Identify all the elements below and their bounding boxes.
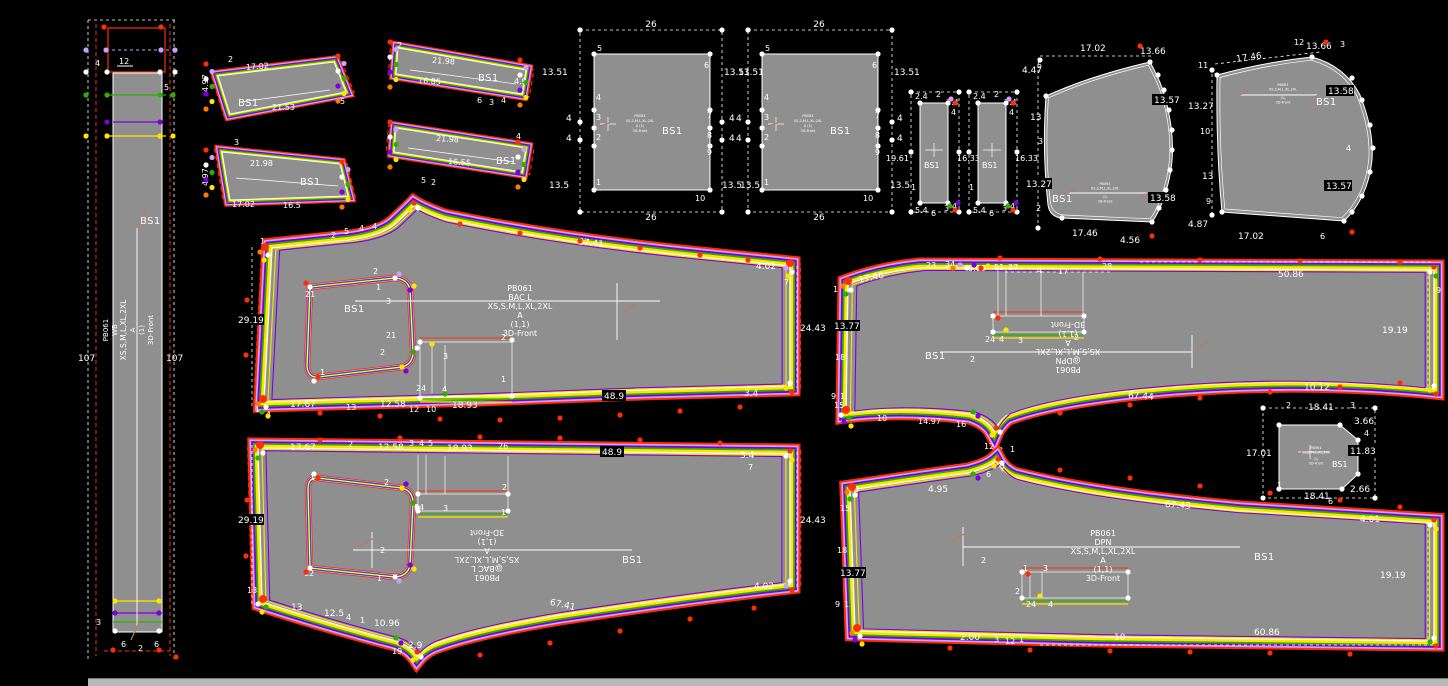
piece-back-top[interactable]: 29.19 1 2 5 4 4 67.41 4.02 7 24.43 17.67… (236, 201, 826, 419)
dim-label: 48.9 (602, 448, 622, 458)
point-label: 37 (1008, 263, 1018, 272)
dim-label: 29.19 (238, 516, 264, 526)
piece-square[interactable]: 2 18.41 3 3.66 4 11.83 2.66 1 18.41 6 17… (1246, 401, 1376, 506)
point-label: 4 (1009, 108, 1014, 117)
svg-text:@BAC L: @BAC L (471, 564, 503, 573)
point-label: 26 (498, 442, 508, 451)
point-label: 24 (985, 335, 995, 344)
bundle-label: BS1 (1052, 194, 1073, 205)
svg-text:3D-Front: 3D-Front (503, 329, 537, 338)
point-label: 21 (305, 290, 315, 299)
piece-annotation: XS,S,M,L,XL,2XL (794, 119, 822, 123)
dim-label: 4.02 (756, 262, 776, 272)
piece-annotation: 3D-Front (632, 129, 648, 133)
piece-annotation: XS,S,M,L,XL,2XL (1302, 451, 1330, 455)
piece-annotation: XS,S,M,L,XL,2XL (626, 119, 654, 123)
dim-label: 4.47 (1022, 66, 1042, 76)
dim-label: 13 (1030, 113, 1041, 123)
point-label: 12 (1005, 637, 1015, 646)
dim-label: 2.66 (1350, 485, 1370, 495)
svg-text:WB: WB (111, 324, 119, 336)
piece-annotation: A (1) (636, 124, 645, 128)
point-label: 2 (1015, 587, 1020, 596)
dim-label: 12.5 (324, 609, 344, 619)
dim-label: 4 (897, 114, 903, 124)
dim-label: 29.19 (238, 316, 264, 326)
dim-label: 21.98 (250, 159, 273, 168)
point-label: 2 (348, 440, 353, 449)
point-label: 3 (443, 504, 448, 513)
point-label: 6 (477, 96, 482, 105)
dim-label: 26 (813, 213, 825, 223)
dim-label: 12.58 (380, 400, 406, 410)
svg-text:(1,1): (1,1) (1059, 329, 1078, 338)
dim-label: 2 (138, 644, 143, 653)
piece-side-right[interactable]: 11 17.46 12 13.66 3 13.58 4 13.57 13.27 … (1188, 38, 1372, 242)
point-label: 6 (989, 209, 994, 218)
dim-label: 17.02 (1238, 232, 1264, 242)
point-label: 5 (340, 97, 345, 106)
point-label: 8 (875, 131, 880, 140)
side-shape[interactable] (1217, 57, 1372, 221)
dim-label: 13.58 (1328, 87, 1354, 97)
dim-label: 4 (729, 114, 735, 124)
dim-label: 13 (291, 603, 302, 613)
point-label: 5 (344, 227, 349, 236)
point-label: 4 (1364, 429, 1369, 438)
piece-annotation: A (1) (804, 124, 813, 128)
point-label: 2 (380, 546, 385, 555)
svg-text:A: A (1065, 338, 1071, 347)
dim-label: 5.4 (915, 206, 928, 215)
svg-text:XS,S,M,L,XL,2XL: XS,S,M,L,XL,2XL (454, 555, 519, 564)
dim-label: 13.77 (834, 322, 860, 332)
point-label: 11 (1198, 61, 1208, 70)
dim-label: 4 (736, 134, 742, 144)
piece-annotation: PB061 (634, 114, 645, 118)
point-label: 2 (384, 478, 389, 487)
dim-label: 11.83 (1350, 447, 1376, 457)
piece-front-top[interactable]: 17.46 1 23 34 0.00 51 37 4 17 28 50.86 9… (831, 260, 1441, 455)
dim-label: 19.61 (886, 154, 909, 163)
dim-label: 24.43 (800, 516, 826, 526)
dim-label: 16.33 (957, 154, 980, 163)
point-label: 13 (346, 403, 356, 412)
point-label: 3 (443, 352, 448, 361)
point-label: 13 (247, 586, 257, 595)
point-label: 9 (707, 148, 712, 157)
point-label: 7 (784, 278, 789, 287)
point-label: 1 (376, 283, 381, 292)
piece-strip-2[interactable]: 2.4 2 2.4 4 16.33 1 5.4 6 3 4 BS1 (969, 90, 1038, 218)
dim-label: 13.27 (1188, 102, 1214, 112)
point-label: 9 (835, 600, 840, 609)
point-label: 3 (489, 98, 494, 107)
svg-text:(1,1): (1,1) (478, 537, 497, 546)
svg-text:XS,S,M,L,XL,2XL: XS,S,M,L,XL,2XL (1035, 347, 1100, 356)
piece-back-bottom[interactable]: 17.67 2 12.58 3 4 5 18.93 26 48.9 3.4 7 … (236, 439, 826, 661)
dim-label: 3.4 (744, 389, 759, 399)
point-label: 6 (931, 209, 936, 218)
piece-waistband[interactable]: 4 12 5 107 107 PB061 WB XS,S,M,L,XL,2XL … (78, 20, 183, 660)
point-label: 2 (970, 355, 975, 364)
pant-front-shape[interactable] (846, 268, 1434, 431)
piece-band-3[interactable]: 2 21.98 16.85 BS1 4.9 6 3 4 (388, 41, 534, 107)
point-label: 24 (416, 384, 426, 393)
point-label: 9 (1436, 286, 1441, 295)
dim-label: 16.55 (448, 157, 471, 168)
svg-text:3D-Front: 3D-Front (1051, 320, 1085, 329)
dim-label: 2.4 (973, 92, 986, 101)
point-label: 3 (994, 635, 999, 644)
point-label: 18 (835, 353, 845, 362)
point-label: 12 (1294, 38, 1304, 47)
piece-annotation: 3D-Front (800, 129, 816, 133)
point-label: 5 (428, 439, 433, 448)
point-label: 1 (840, 392, 845, 401)
point-label: 4 (1037, 266, 1042, 275)
dim-label: 13.27 (1026, 180, 1052, 190)
point-label: 4 (346, 613, 351, 622)
dim-label: 13.5 (740, 181, 760, 191)
piece-annotation: XS,S,M,L,XL,2XL (1091, 187, 1119, 191)
dim-label: 48.9 (604, 392, 624, 402)
point-label: 10 (1200, 127, 1210, 136)
bundle-label: BS1 (496, 156, 517, 167)
point-label: 3 (1350, 401, 1355, 410)
dim-label: 107 (166, 354, 183, 364)
bundle-label: BS1 (238, 98, 259, 109)
point-label: 5 (765, 44, 770, 53)
point-label: 1 (596, 178, 601, 187)
dim-label: 18.41 (1308, 403, 1334, 413)
point-label: 4 (999, 335, 1004, 344)
point-label: 1 (764, 178, 769, 187)
svg-text:BAC L: BAC L (508, 293, 532, 302)
point-label: 18 (837, 546, 847, 555)
point-label: 2 (994, 90, 999, 99)
dim-label: 4 (566, 134, 572, 144)
dim-label: 17.46 (1072, 229, 1098, 239)
piece-annotation: (1) (1281, 96, 1287, 100)
dim-label: 50.86 (1278, 270, 1304, 280)
dim-label: 67.43 (1165, 500, 1191, 512)
point-label: 2 (1286, 401, 1291, 410)
svg-text:PB061: PB061 (1090, 529, 1116, 538)
dim-label: 13.77 (840, 569, 866, 579)
bundle-label: BS1 (300, 177, 321, 188)
piece-annotation: PB061 (1277, 83, 1288, 87)
point-label: 23 (926, 261, 936, 270)
dim-label: 16.33 (1015, 154, 1038, 163)
dim-label: 18.41 (1304, 492, 1330, 502)
point-label: 12 (409, 405, 419, 414)
point-label: 1 (360, 616, 365, 625)
piece-annotation: PB061 (1310, 446, 1321, 450)
point-label: 2 (1036, 204, 1041, 213)
point-label: 2 (764, 133, 769, 142)
point-label: 4 (951, 108, 956, 117)
dim-label: 19.19 (1380, 571, 1406, 581)
dim-label: 13.51 (738, 68, 764, 78)
dim-label: 26 (813, 20, 825, 30)
point-label: 10 (426, 405, 436, 414)
point-label: 1 (844, 600, 849, 609)
bundle-label: BS1 (924, 161, 940, 170)
svg-text:A: A (1100, 556, 1106, 565)
dim-label: 10 (1114, 633, 1126, 643)
point-label: 4 (596, 93, 601, 102)
svg-text:3D-Front: 3D-Front (470, 528, 504, 537)
point-label: 8 (707, 131, 712, 140)
pattern-canvas: 4 12 5 107 107 PB061 WB XS,S,M,L,XL,2XL … (0, 0, 1448, 686)
dim-label: 13.66 (1140, 47, 1166, 57)
point-label: 9 (1206, 197, 1211, 206)
bundle-label: BS1 (344, 304, 365, 315)
point-label: 9 (831, 392, 836, 401)
bundle-label: BS1 (1316, 97, 1337, 108)
bundle-label: BS1 (478, 73, 499, 84)
svg-text:PB061: PB061 (507, 284, 533, 293)
dim-label: 18.93 (452, 401, 478, 411)
point-label: 17 (1058, 267, 1068, 276)
dim-label: 3.4 (740, 451, 755, 461)
dim-label: 10.12 (1304, 383, 1330, 393)
dim-label: 10 (877, 414, 887, 423)
piece-pocket-1[interactable]: 26 26 13.51 4 4 13.5 13.51 4 4 13.5 5 4 … (542, 20, 750, 223)
svg-text:3D-Front: 3D-Front (1086, 574, 1120, 583)
dim-label: 17.02 (1080, 44, 1106, 54)
dim-label: 4.97 (201, 168, 210, 186)
dim-label: 2.9 (408, 641, 423, 651)
bundle-label: BS1 (662, 126, 683, 137)
point-label: 1 (377, 574, 382, 583)
point-label: 2 (431, 178, 436, 187)
dim-label: 4 (729, 134, 735, 144)
point-label: 3 (1340, 40, 1345, 49)
point-label: 19 (392, 647, 402, 656)
point-label: 9 (875, 148, 880, 157)
dim-label: 26 (645, 213, 657, 223)
dim-label: 4.01 (1360, 515, 1380, 525)
dim-label: 17.01 (1246, 449, 1272, 459)
point-label: 7 (748, 463, 753, 472)
point-label: 1 (320, 368, 325, 377)
point-label: 12 (984, 442, 994, 451)
point-label: 3 (386, 297, 391, 306)
point-label: 4 (419, 439, 424, 448)
svg-text:(1): (1) (138, 325, 146, 335)
bundle-label: BS1 (622, 555, 643, 566)
dim-label: 19.19 (1382, 326, 1408, 336)
horizontal-scrollbar[interactable] (88, 678, 1448, 686)
dim-label: 13.58 (1150, 194, 1176, 204)
point-label: 2 (373, 267, 378, 276)
dim-label: 5.4 (973, 206, 986, 215)
point-label: 51 (994, 263, 1004, 272)
point-label: 15 (840, 504, 850, 513)
dim-label: 13.51 (894, 68, 920, 78)
dim-label: 13.51 (542, 68, 568, 78)
dim-label: 18.93 (447, 444, 473, 454)
svg-text:A: A (517, 311, 523, 320)
svg-text:A: A (484, 546, 490, 555)
point-label: 1 (1019, 635, 1024, 644)
dim-label: 4 (736, 114, 742, 124)
piece-strip-1[interactable]: 2.4 2 2.4 4 19.61 16.33 1 5.4 6 3 4 BS1 (886, 90, 980, 218)
point-label: 3 (1038, 137, 1043, 146)
point-label: 2 (981, 556, 986, 565)
point-label: 3 (96, 618, 101, 627)
point-label: 24 (1026, 600, 1036, 609)
point-label: 28 (1102, 262, 1112, 271)
point-label: 4 (1346, 144, 1351, 153)
dim-label: 16.5 (283, 201, 301, 210)
dim-label: 16.85 (418, 76, 441, 87)
point-label: 2 (502, 483, 507, 492)
point-label: 21 (386, 331, 396, 340)
dim-label: 21.98 (432, 56, 455, 67)
svg-text:@DPN: @DPN (1056, 356, 1081, 365)
point-label: 3 (1043, 564, 1048, 573)
dim-label: 13.5 (549, 181, 569, 191)
point-label: 6 (704, 61, 709, 70)
svg-text:PB061: PB061 (1055, 365, 1081, 374)
bundle-label: BS1 (830, 126, 851, 137)
dim-label: 14.97 (918, 417, 941, 426)
point-label: 1 (501, 375, 506, 384)
point-label: 1 (1010, 445, 1015, 454)
piece-annotation: PB061 (1099, 182, 1110, 186)
dim-label: 10.96 (374, 619, 400, 629)
bundle-label: BS1 (1254, 552, 1275, 563)
piece-annotation: PB061 (802, 114, 813, 118)
piece-annotation: (1) (1103, 195, 1109, 199)
dim-label: 3.66 (1354, 417, 1374, 427)
point-label: 1 (969, 183, 974, 192)
dim-label: 4 (95, 59, 100, 68)
svg-text:3D-Front: 3D-Front (147, 315, 155, 345)
point-label: 6 (986, 470, 991, 479)
svg-text:PB061: PB061 (102, 319, 110, 341)
dim-label: 6 (121, 640, 126, 649)
point-label: 4 (359, 224, 364, 233)
dim-label: 13.57 (1326, 182, 1352, 192)
dim-label: 4.95 (928, 485, 948, 495)
point-label: 2 (380, 348, 385, 357)
piece-band-4[interactable]: 21.98 16.55 BS1 4 5 2 (386, 125, 534, 187)
square-shape[interactable] (1279, 425, 1358, 489)
point-label: 2 (228, 55, 233, 64)
dim-label: 4 (566, 114, 572, 124)
dim-label: 4.02 (754, 582, 774, 592)
svg-text:XS,S,M,L,XL,2XL: XS,S,M,L,XL,2XL (1071, 547, 1136, 556)
dim-label: 67.44 (1128, 391, 1155, 403)
point-label: 3 (234, 138, 239, 147)
bundle-label: BS1 (925, 351, 946, 362)
point-label: 2 (596, 133, 601, 142)
point-label: 3 (596, 113, 601, 122)
svg-text:(1,1): (1,1) (1094, 565, 1113, 574)
point-label: 6 (872, 61, 877, 70)
dim-label: 12.58 (378, 443, 404, 453)
point-label: 4 (372, 222, 377, 231)
point-label: 3 (1018, 336, 1023, 345)
point-label: 10 (863, 194, 873, 203)
svg-text:(1,1): (1,1) (511, 320, 530, 329)
svg-text:XS,S,M,L,XL,2XL: XS,S,M,L,XL,2XL (119, 299, 128, 360)
point-label: 4 (501, 96, 506, 105)
piece-annotation: 3D-Front (1275, 101, 1291, 105)
dim-label: 17.67 (290, 400, 316, 410)
svg-text:PB061: PB061 (474, 573, 500, 582)
dim-label: 17.67 (290, 443, 316, 453)
dim-label: 60.86 (1254, 628, 1280, 638)
piece-band-2[interactable]: 3 21.98 BS1 4.97 17.02 16.5 (201, 138, 356, 210)
dim-label: 4.87 (1188, 220, 1208, 230)
point-label: 6 (1328, 497, 1333, 506)
point-label: 5 (164, 83, 169, 92)
dim-label: 16 (956, 420, 966, 429)
point-label: 1 (833, 285, 838, 294)
dim-label: 26 (645, 20, 657, 30)
piece-annotation: (1) (1314, 457, 1320, 461)
dim-label: 12 (119, 57, 129, 66)
dim-label: 17.02 (246, 61, 269, 72)
dim-label: 2.4 (915, 92, 928, 101)
dim-label: 17.46 (1236, 51, 1263, 65)
dim-label: 21.98 (436, 134, 459, 145)
dim-label: 13.57 (1154, 96, 1180, 106)
point-label: 1 (911, 183, 916, 192)
point-label: 2 (331, 231, 336, 240)
piece-annotation: 3D-Front (1308, 462, 1324, 466)
point-label: 5 (597, 44, 602, 53)
dim-label: 17.02 (232, 200, 255, 209)
piece-annotation: 3D-Front (1097, 200, 1113, 204)
dim-label: 13.5 (890, 181, 910, 191)
dim-label: 2.00 (960, 633, 980, 643)
point-label: 10 (695, 194, 705, 203)
point-label: 5 (421, 176, 426, 185)
dim-label: 4.56 (1120, 236, 1140, 246)
dim-label: 107 (78, 354, 95, 364)
point-label: 3 (764, 113, 769, 122)
dim-label: 21.53 (272, 103, 295, 112)
pattern-design-workspace: 4 12 5 107 107 PB061 WB XS,S,M,L,XL,2XL … (0, 0, 1448, 686)
bundle-label: BS1 (140, 216, 161, 227)
point-label: 4 (764, 93, 769, 102)
point-label: 3 (409, 439, 414, 448)
dim-label: 13 (1202, 172, 1213, 182)
bundle-label: BS1 (1332, 460, 1348, 469)
point-label: 6 (1320, 232, 1325, 241)
dim-label: 13.66 (1306, 42, 1332, 52)
piece-band-1[interactable]: 17.02 4.97 BS1 21.53 5 2 (201, 55, 354, 117)
svg-text:A: A (129, 327, 137, 332)
point-label: 2 (936, 90, 941, 99)
dim-label: 4 (897, 134, 903, 144)
svg-text:XS,S,M,L,XL,2XL: XS,S,M,L,XL,2XL (488, 302, 553, 311)
svg-text:DPN: DPN (1095, 538, 1112, 547)
dim-label: 24.43 (800, 324, 826, 334)
piece-annotation: XS,S,M,L,XL,2XL (1269, 88, 1297, 92)
point-label: 1 (501, 508, 506, 517)
bundle-label: BS1 (982, 161, 998, 170)
point-label: 4 (1048, 600, 1053, 609)
